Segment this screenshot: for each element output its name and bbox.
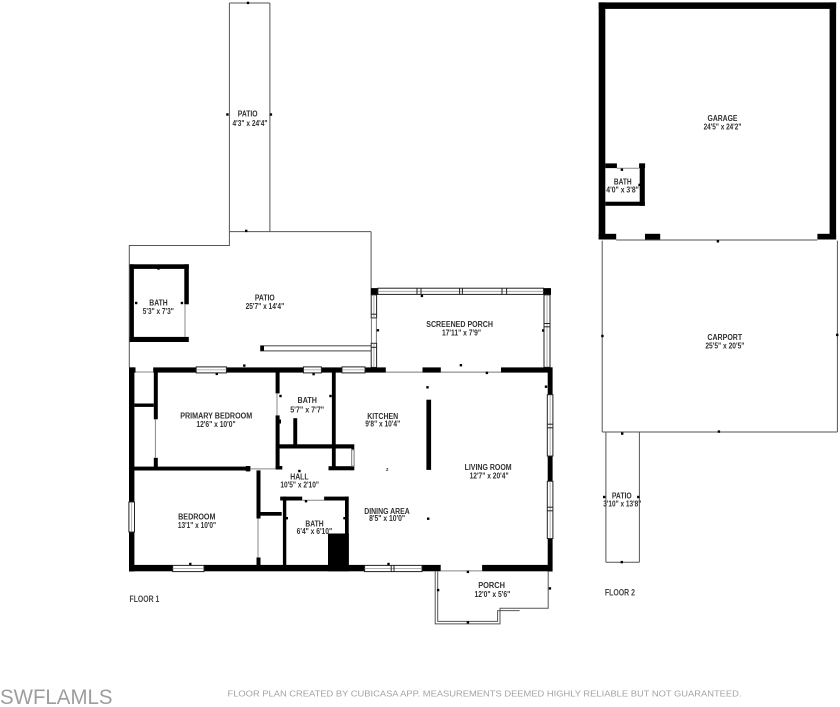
svg-text:4'3" x 24'4": 4'3" x 24'4": [233, 119, 268, 128]
svg-text:6'4" x 6'10": 6'4" x 6'10": [297, 527, 333, 536]
svg-text:BATH: BATH: [149, 298, 168, 307]
svg-text:PATIO: PATIO: [255, 293, 275, 302]
svg-text:17'11" x 7'9": 17'11" x 7'9": [442, 328, 481, 337]
svg-text:FLOOR 2: FLOOR 2: [605, 588, 635, 598]
svg-text:24'5" x 24'2": 24'5" x 24'2": [704, 123, 742, 132]
svg-text:12'7" x 20'4": 12'7" x 20'4": [470, 471, 509, 480]
svg-text:13'1" x 10'0": 13'1" x 10'0": [178, 521, 216, 530]
svg-text:BATH: BATH: [298, 396, 317, 405]
svg-text:5'3" x 7'3": 5'3" x 7'3": [143, 307, 174, 316]
svg-text:25'7" x 14'4": 25'7" x 14'4": [246, 302, 285, 311]
svg-text:SWFLAMLS: SWFLAMLS: [0, 686, 113, 707]
svg-text:10'5" x 2'10": 10'5" x 2'10": [280, 480, 319, 489]
svg-text:BEDROOM: BEDROOM: [178, 512, 216, 521]
svg-text:4'0" x 3'8": 4'0" x 3'8": [606, 186, 639, 195]
svg-text:PATIO: PATIO: [238, 110, 258, 119]
svg-text:8'5" x 10'0": 8'5" x 10'0": [369, 514, 405, 523]
svg-text:FLOOR PLAN CREATED BY CUBICASA: FLOOR PLAN CREATED BY CUBICASA APP. MEAS…: [228, 690, 742, 699]
svg-text:PORCH: PORCH: [478, 581, 505, 590]
svg-text:FLOOR 1: FLOOR 1: [130, 594, 160, 604]
svg-text:5'7" x 7'7": 5'7" x 7'7": [290, 406, 324, 415]
svg-text:25'5" x 20'5": 25'5" x 20'5": [705, 342, 744, 351]
svg-text:9'8" x 10'4": 9'8" x 10'4": [365, 419, 400, 428]
svg-text:12'6" x 10'0": 12'6" x 10'0": [196, 420, 235, 429]
svg-text:12'0" x 5'6": 12'0" x 5'6": [475, 590, 511, 599]
svg-text:3'10" x 13'8": 3'10" x 13'8": [603, 500, 641, 509]
